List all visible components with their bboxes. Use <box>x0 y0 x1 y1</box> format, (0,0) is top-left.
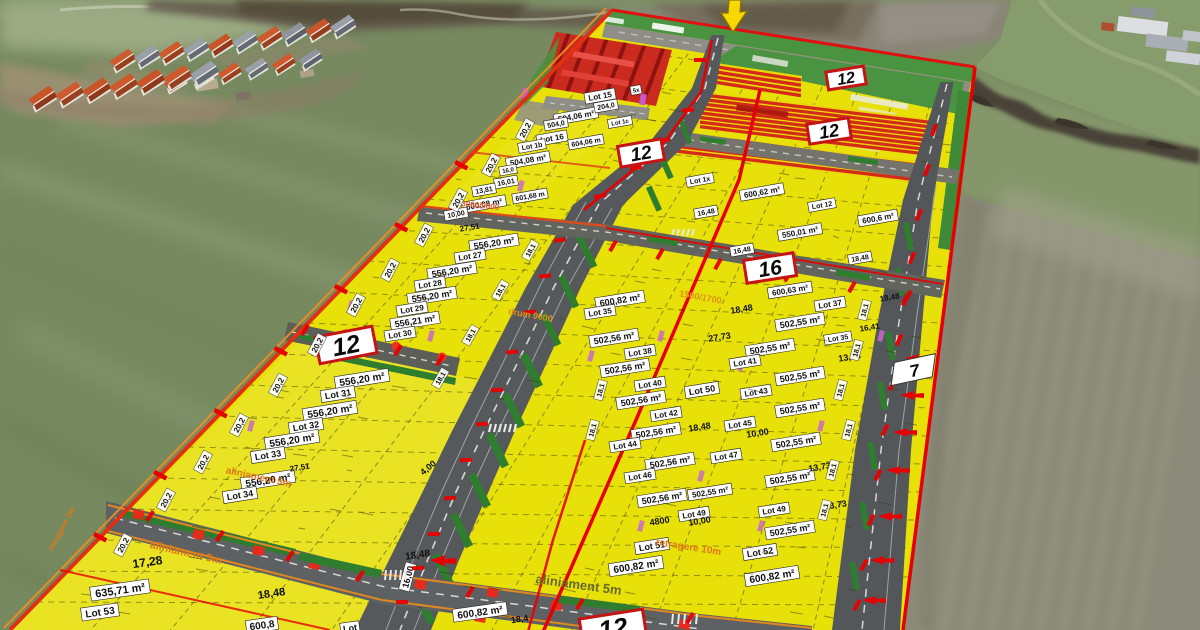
svg-text:12: 12 <box>330 330 363 363</box>
svg-text:12: 12 <box>596 611 630 630</box>
svg-text:Lot: Lot <box>342 622 357 630</box>
svg-text:16: 16 <box>757 256 784 282</box>
svg-text:12: 12 <box>818 120 841 143</box>
svg-text:12: 12 <box>836 69 856 89</box>
svg-text:12: 12 <box>629 142 654 166</box>
